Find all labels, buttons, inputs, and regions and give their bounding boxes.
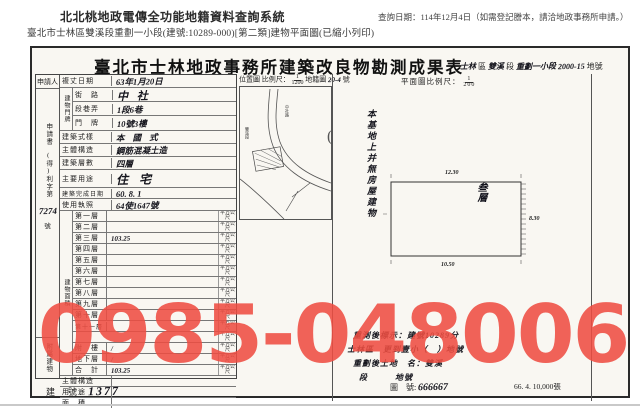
print-batch-info: 66. 4. 10,000張 xyxy=(514,381,561,392)
survey-date-label: 複丈日期 xyxy=(60,76,112,86)
storeys-row: 建築層數 四層 xyxy=(60,157,236,170)
applicant-label: 申請人 xyxy=(36,75,59,89)
lane-label: 段巷弄 xyxy=(73,104,113,114)
dimension-bottom: 10.50 xyxy=(441,262,455,268)
dimension-right: 8.30 xyxy=(529,216,540,222)
floor-row: 第三層103.25平方公尺 xyxy=(73,233,236,244)
room-floor-label: 叁層 xyxy=(473,182,488,202)
building-number-label: 建 號: xyxy=(46,387,84,397)
floor-row: 第五層平方公尺 xyxy=(73,255,236,266)
district-suffix: 區 xyxy=(478,62,486,71)
section-label: 雙溪段 xyxy=(244,127,250,139)
license-value: 64使1647號 xyxy=(112,197,236,211)
floor-row: 第六層平方公尺 xyxy=(73,266,236,277)
structure-row: 主體構造 鋼筋混凝土造 xyxy=(60,144,236,157)
storeys-label: 建築層數 xyxy=(60,158,112,168)
building-number-row: 建 號: 1377 xyxy=(46,384,120,399)
docket-suffix: 號 xyxy=(44,220,51,230)
street-value: 中 社 xyxy=(113,85,236,103)
door-row: 門 牌 10號3樓 xyxy=(73,116,236,130)
system-title: 北北桃地政電傳全功能地籍資料查詢系統 xyxy=(60,8,285,25)
dimension-top: 12.30 xyxy=(445,170,459,176)
usage-label: 主要用途 xyxy=(60,174,112,184)
parcel-suffix: 地號 xyxy=(587,62,603,71)
usage-value: 住 宅 xyxy=(112,169,236,188)
plan-scale-header: 平面圖比例尺： 1200 xyxy=(401,76,475,88)
license-row: 使用執照 64使1647號 xyxy=(60,199,236,211)
district-value: 士林 xyxy=(460,61,476,72)
sheet-number-label: 圖 號: xyxy=(390,383,416,392)
annex-area-row: 面 積 xyxy=(60,398,236,408)
completed-row: 建築完成日期 60. 8. 1 xyxy=(60,188,236,199)
location-map-label: 位置圖 xyxy=(239,76,260,84)
location-scale-fraction: 11200 xyxy=(292,74,304,86)
location-map: 中社路 雙溪段 xyxy=(239,86,332,220)
query-date-note: 查詢日期：114年12月4日（如需登記謄本，請洽地政事務所申請。） xyxy=(378,11,628,23)
street-label: 街 路 xyxy=(73,90,113,100)
style-row: 建築式樣 本 國 式 xyxy=(60,131,236,144)
street-row: 街 路 中 社 xyxy=(73,88,236,102)
structure-label: 主體構造 xyxy=(60,145,112,155)
fold-mark: ( xyxy=(327,128,332,146)
floor-row: 第四層平方公尺 xyxy=(73,244,236,255)
parcel-number: 2000-15 xyxy=(558,62,585,71)
sheet-number-row: 圖 號: 666667 xyxy=(390,382,448,393)
storeys-value: 四層 xyxy=(112,156,236,170)
door-label: 門 牌 xyxy=(73,118,113,128)
floor-row: 第一層平方公尺 xyxy=(73,211,236,222)
plan-scale-fraction: 1200 xyxy=(463,76,475,88)
cadastral-label: 地籍圖 xyxy=(305,76,326,84)
style-label: 建築式樣 xyxy=(60,132,112,142)
sheet-number-value: 666667 xyxy=(418,382,448,394)
completed-label: 建築完成日期 xyxy=(60,189,112,198)
lane-row: 段巷弄 1段6巷 xyxy=(73,102,236,116)
structure-value: 鋼筋混凝土造 xyxy=(112,143,236,157)
door-value: 10號3樓 xyxy=(113,116,236,130)
wall-hatch xyxy=(521,184,526,254)
door-group-label: 建物門牌 xyxy=(63,95,69,123)
document-subtitle: 臺北市士林區雙溪段重劃一小段(建號:10289-000)[第二類]建物平面圖(已… xyxy=(27,25,374,39)
form-title-location: 士林 區 雙溪 段 重劃一小段 2000-15 地號 xyxy=(460,61,603,72)
section-suffix: 段 xyxy=(506,62,514,71)
road-label: 中社路 xyxy=(284,105,290,117)
usage-row: 主要用途 住 宅 xyxy=(60,170,236,188)
floor-row: 第二層平方公尺 xyxy=(73,222,236,233)
subsection-value: 重劃一小段 xyxy=(516,61,556,73)
site-parcel-hatch xyxy=(252,147,283,174)
style-value: 本 國 式 xyxy=(112,130,236,144)
watermark-phone-number: 0985-048006 xyxy=(0,288,640,381)
license-label: 使用執照 xyxy=(60,200,112,210)
docket-mid: (得)利字第 xyxy=(44,152,51,198)
door-plate-group: 建物門牌 街 路 中 社 段巷弄 1段6巷 門 牌 10號3樓 xyxy=(60,88,236,131)
bottom-divider xyxy=(0,404,640,406)
floor-row: 第七層平方公尺 xyxy=(73,277,236,288)
lane-value: 1段6巷 xyxy=(113,101,236,115)
scale-label: 比例尺： xyxy=(262,76,290,84)
docket-top: 申請書 xyxy=(44,123,51,146)
building-number-value: 1377 xyxy=(88,384,120,400)
section-value: 雙溪 xyxy=(488,61,504,72)
docket-number: 7274 xyxy=(38,205,56,215)
